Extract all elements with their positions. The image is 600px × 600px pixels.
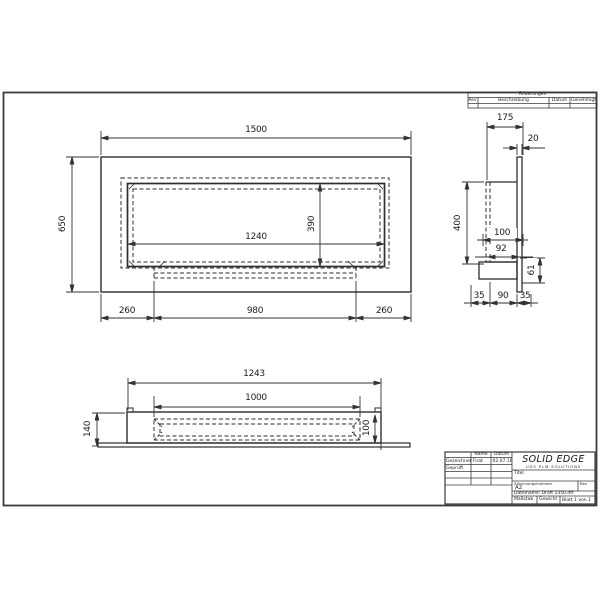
dim-side-depth: 175 xyxy=(485,113,525,123)
titleblock-filename: Dateiname: Draft 1350.dft xyxy=(514,492,574,497)
revision-col-description: Beschreibung xyxy=(478,99,549,104)
dim-top-body-width: 1243 xyxy=(234,369,274,379)
titleblock-rev-label: Rev xyxy=(580,482,587,486)
dim-side-panel-thickness: 20 xyxy=(513,134,553,144)
dim-front-opening-width: 1240 xyxy=(236,232,276,242)
dim-front-overall-width: 1500 xyxy=(236,125,276,135)
titleblock-checked-label: Geprüft xyxy=(446,467,463,472)
dim-side-92: 92 xyxy=(489,244,513,254)
front-view-dimension-lines xyxy=(66,131,411,322)
dim-front-opening-height: 390 xyxy=(307,212,317,236)
dim-side-35-right: 35 xyxy=(509,291,541,301)
titleblock-date-col: Datum xyxy=(491,453,512,458)
titleblock-name-col: Name xyxy=(471,453,491,458)
dim-top-inner-depth-100: 100 xyxy=(362,416,372,440)
revision-table-header: Änderungen xyxy=(468,93,597,98)
dim-front-left-offset: 260 xyxy=(107,306,147,316)
titleblock-title-label: Titel xyxy=(514,472,524,477)
titleblock-weight-label: Gewicht xyxy=(539,498,557,503)
revision-col-approved: Genehmigt xyxy=(570,99,597,104)
revision-col-date: Datum xyxy=(549,99,570,104)
titleblock-software-subtitle: UGS PLM SOLUTIONS xyxy=(512,465,595,469)
dim-top-depth-140: 140 xyxy=(83,417,93,441)
titleblock-sheet-number: Blatt 1 von 1 xyxy=(562,499,591,504)
side-view-linework xyxy=(479,157,522,292)
titleblock-drawn-name: Firat xyxy=(473,460,483,465)
dim-side-box-height: 400 xyxy=(453,211,463,235)
dim-top-burner-width: 1000 xyxy=(236,393,276,403)
dim-front-overall-height: 650 xyxy=(58,212,68,236)
revision-col-rev: Rev xyxy=(467,99,478,104)
titleblock-drawn-label: Gezeichnet xyxy=(446,460,471,465)
dim-front-center-width: 980 xyxy=(235,306,275,316)
titleblock-scale-label: Maßstab xyxy=(514,498,533,503)
dim-side-61: 61 xyxy=(527,258,537,282)
dim-side-100: 100 xyxy=(487,228,517,238)
titleblock-drawn-date: 02.07.16 xyxy=(493,460,513,465)
front-view-linework xyxy=(101,157,411,292)
top-view-dimension-lines xyxy=(92,378,381,450)
dim-front-right-offset: 260 xyxy=(364,306,404,316)
drawing-sheet: 1500 650 1240 390 260 980 260 175 20 400… xyxy=(0,0,600,600)
